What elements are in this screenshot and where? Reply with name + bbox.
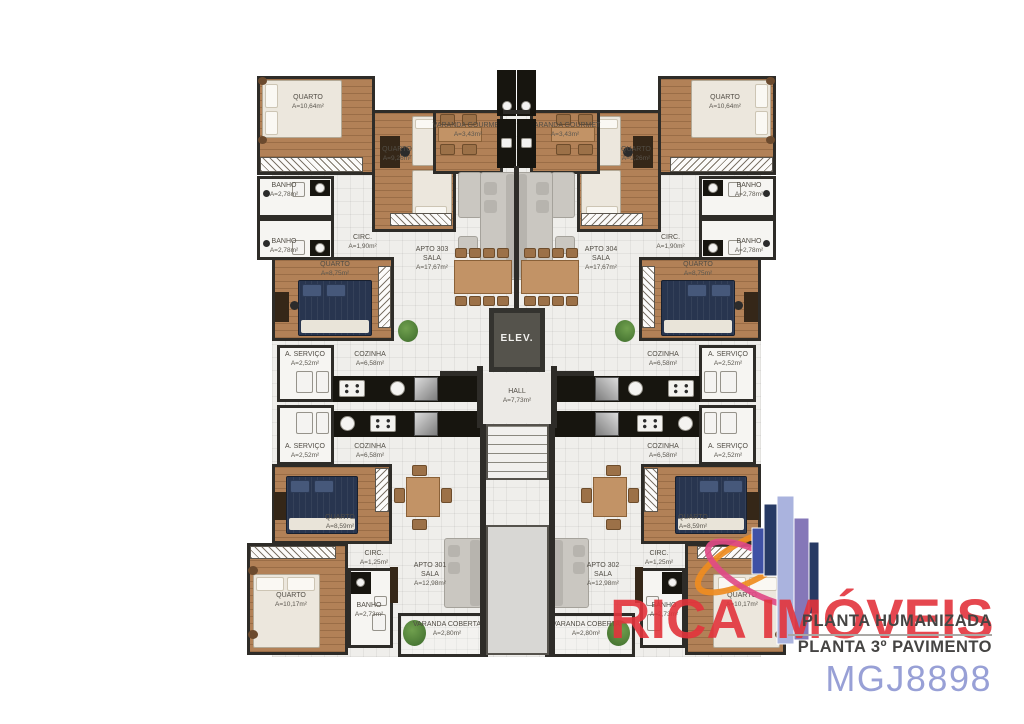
room-label-varanda-gourmet: VARANDA GOURMETA=3,43m²	[528, 122, 602, 139]
sofa-chaise	[458, 172, 482, 218]
closet-hatch	[378, 266, 391, 328]
room-label-banho-1: BANHOA=2,78m²	[727, 182, 771, 199]
chair	[412, 465, 427, 476]
room-label-circ: CIRC.A=1,90m²	[643, 234, 698, 251]
plan-half-left: QUARTOA=10,64m² QUARTOA=9,26m² BANHOA=2,…	[240, 0, 517, 724]
closet-hatch	[375, 468, 389, 512]
hall-label: HALLA=7,73m²	[487, 388, 547, 405]
elevator: ELEV.	[489, 308, 545, 372]
room-label-cozinha-top: COZINHAA=6,58m²	[628, 351, 698, 368]
bed-sheet	[301, 320, 369, 333]
pillow	[326, 284, 346, 297]
room-label-circ: CIRC.A=1,90m²	[335, 234, 390, 251]
pillow	[755, 111, 768, 135]
dining-table	[406, 477, 440, 517]
sink	[708, 183, 718, 193]
kitchen-sink	[678, 416, 693, 431]
pillow	[256, 577, 284, 591]
chair	[581, 488, 592, 503]
chair	[628, 488, 639, 503]
washer	[296, 371, 313, 393]
chair	[552, 248, 564, 258]
room-label-quarto-corner: QUARTOA=10,64m²	[278, 94, 338, 111]
party-wall	[514, 166, 519, 312]
listing-code: MGJ8898	[744, 658, 992, 700]
dining-table	[593, 477, 627, 517]
room-label-cozinha-bottom: COZINHAA=6,58m²	[335, 443, 405, 460]
room-label-quarto-corner-bottom: QUARTOA=10,17m²	[258, 592, 324, 609]
room-label-sala-bottom: APTO 302SALAA=12,98m²	[571, 562, 635, 588]
kitchen-sink	[628, 381, 643, 396]
stove	[637, 415, 663, 432]
chair	[552, 296, 564, 306]
nightstand	[258, 136, 267, 144]
room-label-sala-top: APTO 303SALAA=17,67m²	[400, 246, 464, 272]
caption-pavimento: PLANTA 3º PAVIMENTO	[744, 638, 992, 657]
room-label-quarto-mid: QUARTOA=8,75m²	[665, 261, 731, 278]
room-label-banho-2: BANHOA=2,78m²	[262, 238, 306, 255]
pillow	[302, 284, 322, 297]
chair	[524, 296, 536, 306]
chair	[469, 296, 481, 306]
sofa-pillow	[536, 182, 549, 195]
chair	[497, 248, 509, 258]
closet-hatch	[390, 213, 452, 226]
wall-segment	[554, 371, 594, 376]
room-label-varanda-gourmet: VARANDA GOURMETA=3,43m²	[431, 122, 505, 139]
kitchen-sink	[390, 381, 405, 396]
room-label-circ-bottom: CIRC.A=1,25m²	[344, 550, 404, 567]
chair	[606, 519, 621, 530]
room-label-quarto-inner: QUARTOA=9,26m²	[613, 146, 659, 163]
kitchen-counter	[333, 411, 480, 437]
caption-divider	[788, 634, 992, 636]
desk	[744, 292, 758, 322]
closet-hatch	[642, 266, 655, 328]
room-label-servico-bottom: A. SERVIÇOA=2,52m²	[693, 443, 763, 460]
nightstand	[258, 77, 267, 85]
desk-chair	[290, 301, 299, 310]
floor-plan-page: QUARTOA=10,64m² QUARTOA=9,26m² BANHOA=2,…	[0, 0, 1024, 724]
room-label-banho-2: BANHOA=2,78m²	[727, 238, 771, 255]
room-label-quarto-inner: QUARTOA=9,26m²	[374, 146, 420, 163]
room-label-banho-1: BANHOA=2,78m²	[262, 182, 306, 199]
desk-chair	[734, 301, 743, 310]
chair	[394, 488, 405, 503]
chair	[556, 144, 571, 155]
laundry-tank	[704, 412, 717, 434]
pillow	[314, 480, 334, 493]
chair	[524, 248, 536, 258]
chair	[566, 296, 578, 306]
plant	[398, 320, 418, 342]
sofa-pillow	[484, 182, 497, 195]
chair	[606, 465, 621, 476]
chair	[412, 519, 427, 530]
pillow	[755, 84, 768, 108]
sofa-pillow	[536, 200, 549, 213]
chair	[483, 296, 495, 306]
chair	[462, 144, 477, 155]
pillow	[711, 284, 731, 297]
caption-planta-humanizada: PLANTA HUMANIZADA	[744, 612, 992, 631]
fridge	[595, 377, 619, 401]
chair	[497, 296, 509, 306]
pillow	[287, 577, 315, 591]
desk	[274, 492, 286, 520]
closet-hatch	[250, 546, 336, 559]
kitchen-sink	[340, 416, 355, 431]
closet-hatch	[260, 157, 363, 172]
wall-segment	[440, 371, 480, 376]
room-label-quarto-mid: QUARTOA=8,75m²	[302, 261, 368, 278]
grill-sink	[501, 138, 512, 148]
chair	[441, 488, 452, 503]
stove	[339, 380, 365, 397]
grill-sink	[521, 138, 532, 148]
chair	[538, 248, 550, 258]
sofa-pillow	[484, 200, 497, 213]
washer	[720, 412, 737, 434]
laundry-tank	[316, 412, 329, 434]
room-label-sala-bottom: APTO 301SALAA=12,98m²	[398, 562, 462, 588]
chair	[578, 144, 593, 155]
nightstand	[248, 566, 258, 575]
pillow	[290, 480, 310, 493]
shower-head	[356, 578, 365, 587]
elevator-label: ELEV.	[494, 333, 540, 344]
nightstand	[766, 77, 775, 85]
chair	[538, 296, 550, 306]
room-label-circ-bottom: CIRC.A=1,25m²	[629, 550, 689, 567]
wall-segment	[503, 110, 517, 114]
laundry-tank	[704, 371, 717, 393]
fridge	[414, 412, 438, 436]
fridge	[414, 377, 438, 401]
room-label-servico-bottom: A. SERVIÇOA=2,52m²	[270, 443, 340, 460]
sofa-pillow	[448, 545, 460, 557]
chair	[455, 296, 467, 306]
room-label-sala-top: APTO 304SALAA=17,67m²	[569, 246, 633, 272]
chair	[469, 248, 481, 258]
plant	[615, 320, 635, 342]
sofa-chaise	[551, 172, 575, 218]
stairwell-wall-right	[549, 424, 555, 655]
tv-panel	[390, 567, 398, 603]
room-label-varanda-coberta: VARANDA COBERTAA=2,80m²	[412, 621, 482, 638]
room-label-cozinha-bottom: COZINHAA=6,58m²	[628, 443, 698, 460]
stair-landing	[486, 525, 549, 655]
fridge	[595, 412, 619, 436]
room-label-quarto-mid-bottom: QUARTOA=8,59m²	[307, 514, 373, 531]
staircase	[486, 424, 549, 480]
plan-captions: PLANTA HUMANIZADA PLANTA 3º PAVIMENTO MG…	[744, 612, 992, 700]
room-label-servico-top: A. SERVIÇOA=2,52m²	[270, 351, 340, 368]
laundry-tank	[316, 371, 329, 393]
closet-hatch	[670, 157, 773, 172]
sink	[315, 243, 325, 253]
desk	[275, 292, 289, 322]
washer	[296, 412, 313, 434]
sink	[315, 183, 325, 193]
washer	[720, 371, 737, 393]
room-label-banho-bottom: BANHOA=2,73m²	[345, 602, 393, 619]
pillow	[265, 111, 278, 135]
pillow	[687, 284, 707, 297]
stove	[370, 415, 396, 432]
nightstand	[248, 630, 258, 639]
chair	[483, 248, 495, 258]
pillow	[265, 84, 278, 108]
room-label-cozinha-top: COZINHAA=6,58m²	[335, 351, 405, 368]
bed-sheet	[664, 320, 732, 333]
stove	[668, 380, 694, 397]
room-label-servico-top: A. SERVIÇOA=2,52m²	[693, 351, 763, 368]
chair	[440, 144, 455, 155]
wall-segment	[516, 110, 530, 114]
nightstand	[766, 136, 775, 144]
sink	[708, 243, 718, 253]
room-label-quarto-corner: QUARTOA=10,64m²	[695, 94, 755, 111]
sofa-pillow	[573, 545, 585, 557]
closet-hatch	[644, 468, 658, 512]
closet-hatch	[581, 213, 643, 226]
